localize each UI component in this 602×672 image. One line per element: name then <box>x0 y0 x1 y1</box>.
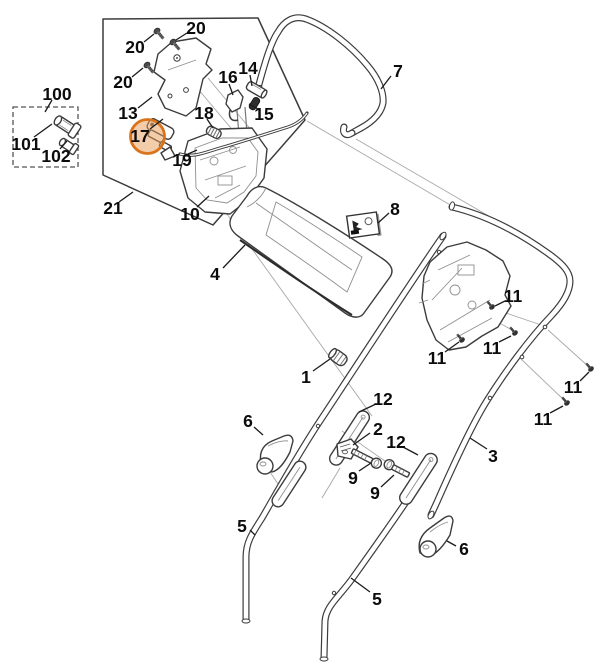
part-label-17: 17 <box>130 126 149 146</box>
part-label-12a: 12 <box>373 389 393 409</box>
part-label-12b: 12 <box>386 432 406 452</box>
part-label-3: 3 <box>488 446 498 466</box>
part-16-bracket <box>226 90 243 121</box>
exploded-parts-diagram: 20 20 20 13 17 18 19 16 14 15 10 21 100 … <box>0 0 602 672</box>
part-label-9a: 9 <box>348 468 358 488</box>
part-label-100: 100 <box>42 84 71 104</box>
part-label-13: 13 <box>118 103 138 123</box>
part-label-7: 7 <box>393 61 403 81</box>
part-label-11b: 11 <box>483 338 502 358</box>
screw-11-icon <box>560 395 570 406</box>
part-label-6b: 6 <box>459 539 469 559</box>
part-label-5b: 5 <box>372 589 382 609</box>
part-label-20c: 20 <box>113 72 133 92</box>
part-label-9b: 9 <box>370 483 380 503</box>
part-label-11e: 11 <box>534 409 553 429</box>
part-label-1: 1 <box>301 367 311 387</box>
part-label-21: 21 <box>103 198 123 218</box>
part-8-sticker <box>347 212 382 240</box>
part-housing-right <box>419 242 511 350</box>
part-label-11a: 11 <box>504 286 523 306</box>
part-label-6a: 6 <box>243 411 253 431</box>
part-label-102: 102 <box>41 146 70 166</box>
part-label-18: 18 <box>194 103 214 123</box>
part-label-14: 14 <box>238 58 258 78</box>
parts-diagram-page: 20 20 20 13 17 18 19 16 14 15 10 21 100 … <box>0 0 602 672</box>
part-label-4: 4 <box>210 264 220 284</box>
screw-20-icon <box>153 27 166 41</box>
part-label-20b: 20 <box>186 18 206 38</box>
part-label-15: 15 <box>254 104 274 124</box>
part-label-8: 8 <box>390 199 400 219</box>
part-6-cam-lever-right <box>419 516 453 557</box>
part-label-5a: 5 <box>237 516 247 536</box>
part-label-16: 16 <box>218 67 238 87</box>
part-label-20a: 20 <box>125 37 145 57</box>
part-9-bolt <box>383 458 412 479</box>
part-label-11d: 11 <box>564 377 583 397</box>
part-label-2: 2 <box>373 419 383 439</box>
part-label-10: 10 <box>180 204 200 224</box>
part-label-101: 101 <box>11 134 40 154</box>
part-label-11c: 11 <box>428 348 447 368</box>
screw-11-icon <box>584 361 594 372</box>
part-1-plug <box>327 347 349 368</box>
part-101-knob <box>52 112 82 139</box>
part-12-clamp-strip-right <box>397 451 439 507</box>
part-label-19: 19 <box>172 150 192 170</box>
screw-11-icon <box>508 325 518 336</box>
